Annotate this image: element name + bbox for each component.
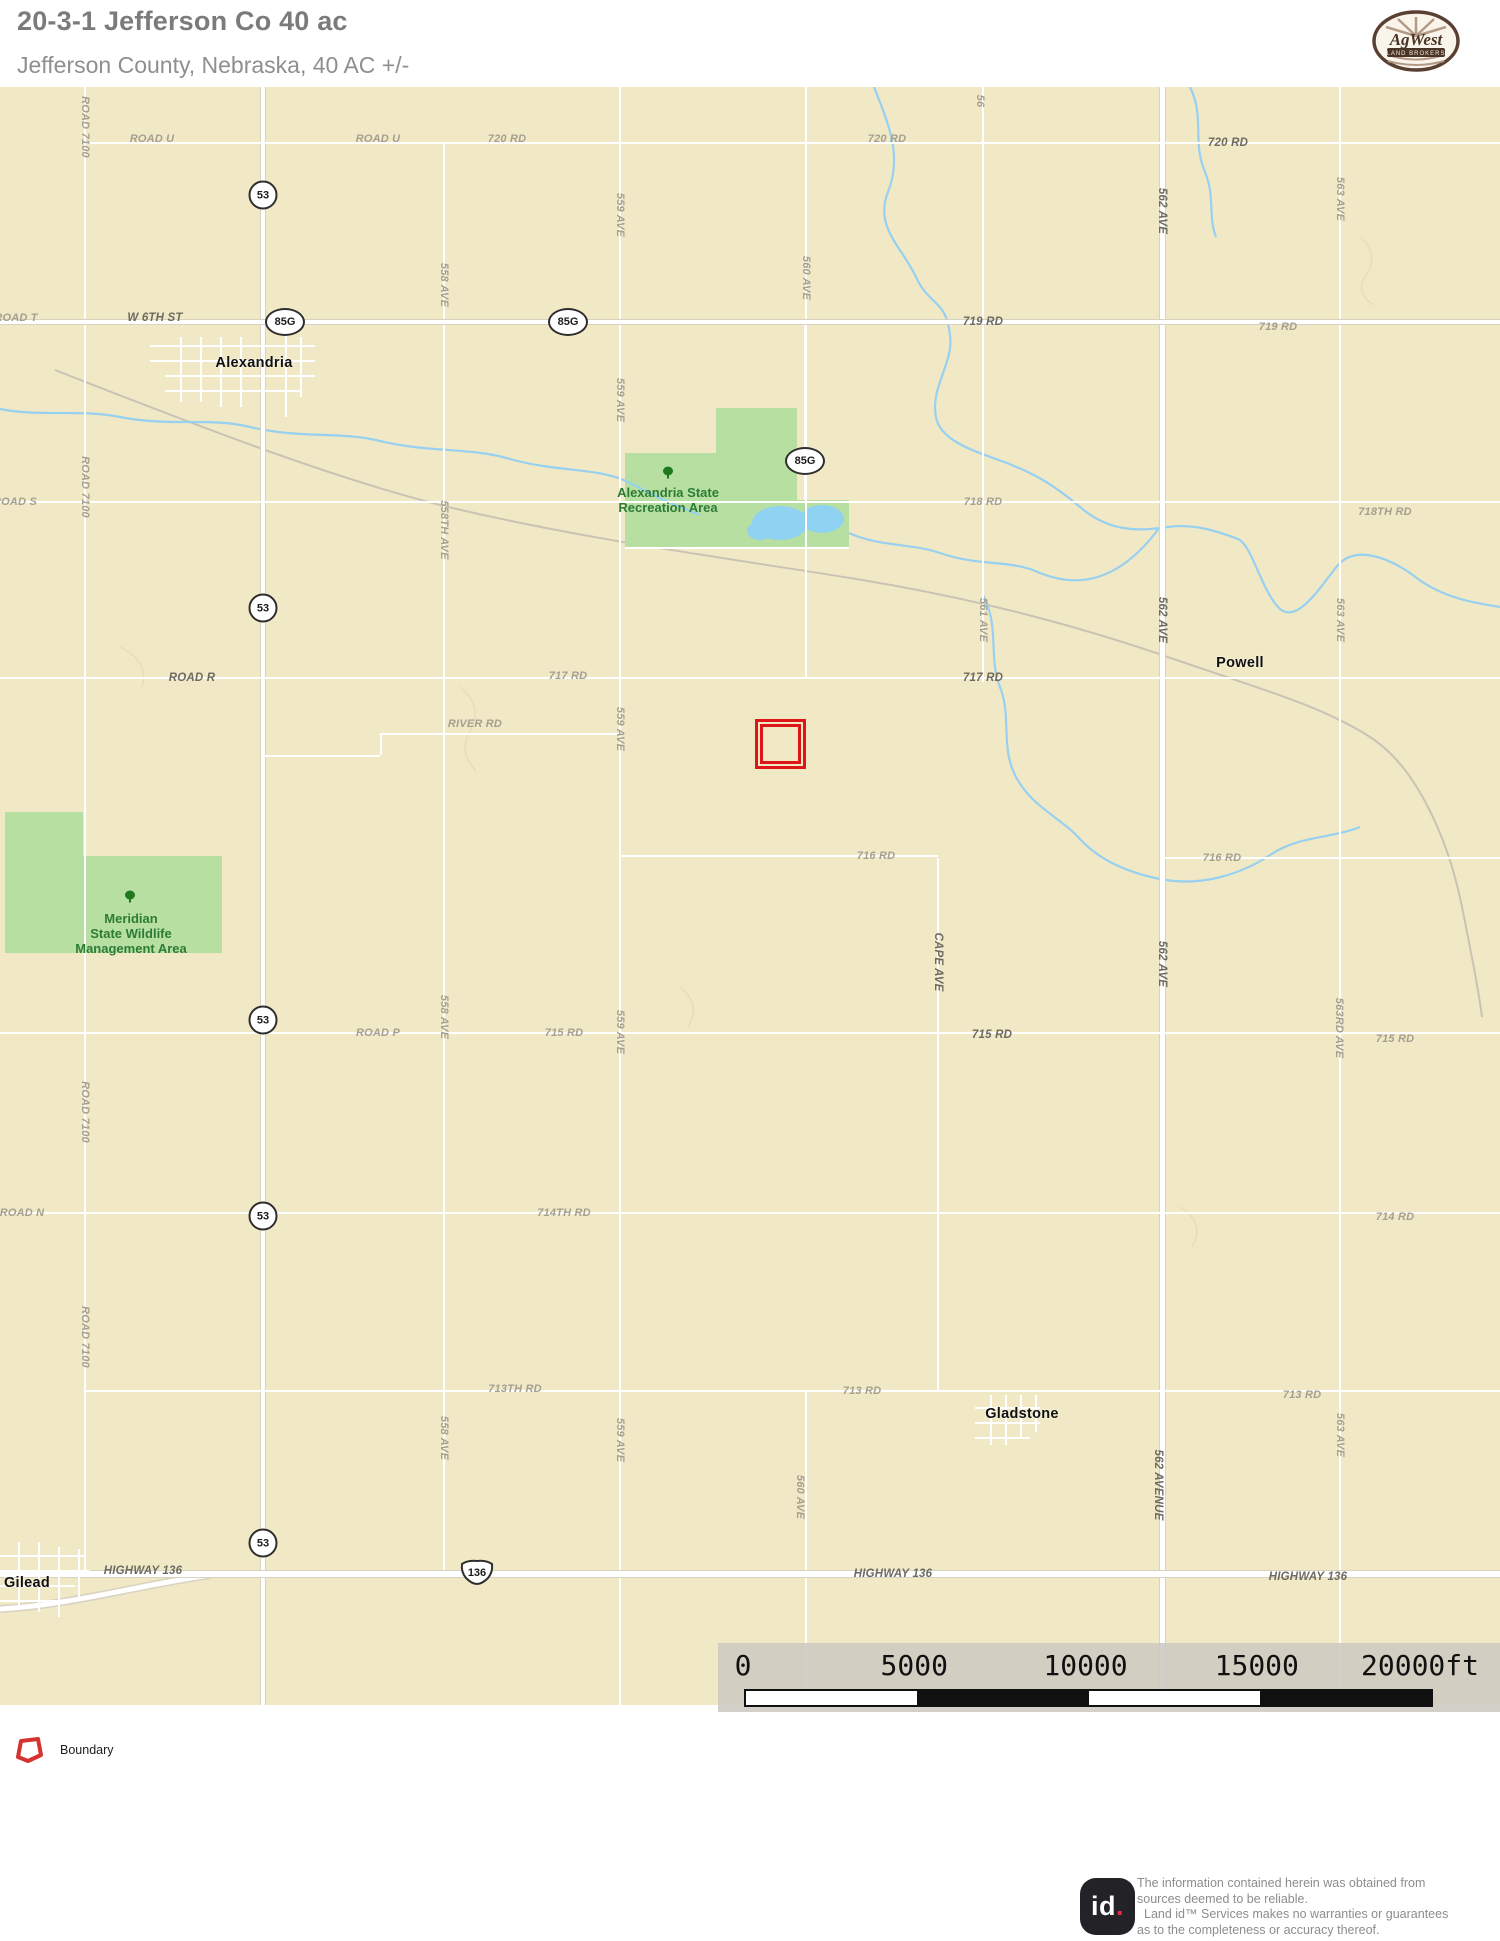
road-label-vertical: 559 AVE <box>614 1418 626 1462</box>
park-area-label: MeridianState WildlifeManagement Area <box>75 911 187 956</box>
road-label: 719 RD <box>1259 321 1298 333</box>
street-segment <box>285 330 287 417</box>
town-label: Gladstone <box>985 1406 1059 1422</box>
road-label: 718TH RD <box>1358 506 1412 518</box>
highway-shield: 53 <box>249 181 278 210</box>
road-label-vertical: ROAD 7100 <box>79 1081 91 1143</box>
scale-tick-label: 15000 <box>1215 1649 1299 1682</box>
road-label-vertical: 559 AVE <box>614 378 626 422</box>
highway-shield: 53 <box>249 594 278 623</box>
scale-tick-label: 0 <box>735 1649 752 1682</box>
svg-text:136: 136 <box>468 1567 486 1579</box>
street-segment <box>240 337 242 407</box>
scale-bar-segments <box>744 1689 1433 1707</box>
legend-item-label: Boundary <box>60 1743 114 1757</box>
street-segment <box>200 337 202 402</box>
road-label: RIVER RD <box>448 718 502 730</box>
road-segment <box>982 87 984 682</box>
road-label-vertical: 562 AVE <box>1156 188 1168 234</box>
road-label: 718 RD <box>964 496 1003 508</box>
road-label-vertical: 563RD AVE <box>1333 998 1345 1059</box>
street-segment <box>0 1600 60 1602</box>
highway-shield: 53 <box>249 1529 278 1558</box>
map-scale-bar: 05000100001500020000ft <box>718 1643 1500 1712</box>
road-label: ROAD R <box>169 672 216 684</box>
street-segment <box>380 733 625 735</box>
tree-icon <box>123 890 137 909</box>
road-label-vertical: 558 AVE <box>438 263 450 307</box>
road-label: 720 RD <box>488 133 527 145</box>
road-label: 717 RD <box>549 670 588 682</box>
street-segment <box>78 1549 80 1597</box>
page: 20-3-1 Jefferson Co 40 ac Jefferson Coun… <box>0 0 1500 1941</box>
street-segment <box>58 1547 60 1617</box>
road-label: HIGHWAY 136 <box>1269 1571 1347 1583</box>
road-segment <box>1339 87 1341 1705</box>
road-label-vertical: 563 AVE <box>1334 177 1346 221</box>
disclaimer-line: The information contained herein was obt… <box>1137 1876 1500 1892</box>
page-subtitle: Jefferson County, Nebraska, 40 AC +/- <box>17 52 409 79</box>
road-label: W 6TH ST <box>127 312 182 324</box>
road-label-vertical: 563 AVE <box>1334 598 1346 642</box>
road-label: ROAD T <box>0 312 38 324</box>
road-label-vertical: 561 AVE <box>977 598 989 642</box>
road-label-vertical: 559 AVE <box>614 1010 626 1054</box>
town-label: Gilead <box>4 1575 50 1591</box>
road-segment <box>261 87 265 1705</box>
road-label: HIGHWAY 136 <box>104 1565 182 1577</box>
park-area-label: Alexandria StateRecreation Area <box>617 485 719 515</box>
road-segment <box>0 1032 1500 1034</box>
street-segment <box>265 755 380 757</box>
terrain-texture <box>120 237 1374 1247</box>
highway-shield: 85G <box>785 447 825 475</box>
road-label: 714 RD <box>1376 1211 1415 1223</box>
land-id-logo-dot: . <box>1116 1891 1124 1922</box>
road-segment <box>619 87 621 1705</box>
boundary-legend-icon <box>14 1736 44 1764</box>
street-segment <box>180 337 182 402</box>
road-label: 719 RD <box>963 316 1003 328</box>
legend: Boundary <box>14 1736 114 1764</box>
road-label-vertical: 559 AVE <box>614 193 626 237</box>
street-segment <box>300 337 302 397</box>
road-label: 716 RD <box>1203 852 1242 864</box>
road-segment <box>0 1212 1500 1214</box>
road-segment <box>443 143 445 1577</box>
road-label: HIGHWAY 136 <box>854 1568 932 1580</box>
road-label: 715 RD <box>1376 1033 1415 1045</box>
highway-shield: 136 <box>459 1557 495 1587</box>
agwest-land-brokers-logo: AgWest LAND BROKERS <box>1372 9 1460 73</box>
road-label-vertical: 56 <box>974 95 986 108</box>
road-label: ROAD P <box>356 1027 400 1039</box>
agwest-logo-name: AgWest <box>1389 30 1444 49</box>
scale-tick-label: 5000 <box>881 1649 948 1682</box>
street-segment <box>975 1422 1040 1424</box>
street-segment <box>165 390 300 392</box>
property-boundary[interactable] <box>755 719 806 769</box>
road-label: 715 RD <box>545 1027 584 1039</box>
highway-shield: 85G <box>548 308 588 336</box>
street-segment <box>380 733 382 755</box>
road-label-vertical: 563 AVE <box>1334 1413 1346 1457</box>
street-segment <box>0 1555 85 1557</box>
street-segment <box>625 547 849 549</box>
road-label-vertical: 558 AVE <box>438 995 450 1039</box>
road-label-vertical: 562 AVE <box>1156 941 1168 987</box>
road-label: 716 RD <box>857 850 896 862</box>
road-label: ROAD U <box>356 133 401 145</box>
road-segment <box>0 677 1500 679</box>
road-label: 717 RD <box>963 672 1003 684</box>
road-label-vertical: 560 AVE <box>794 1475 806 1519</box>
road-label: 715 RD <box>972 1029 1012 1041</box>
town-label: Powell <box>1216 655 1264 671</box>
street-segment <box>150 345 315 347</box>
road-label: 720 RD <box>1208 137 1248 149</box>
land-id-logo-text: id <box>1091 1891 1116 1922</box>
disclaimer-line: as to the completeness or accuracy there… <box>1137 1923 1500 1939</box>
road-label-vertical: 560 AVE <box>800 256 812 300</box>
tree-icon <box>661 466 675 485</box>
street-segment <box>0 1570 90 1572</box>
road-segment <box>85 142 1500 144</box>
road-label: 713 RD <box>843 1385 882 1397</box>
land-id-logo: id. <box>1080 1878 1135 1935</box>
road-label-vertical: ROAD 7100 <box>79 456 91 518</box>
road-label-vertical: 562 AVENUE <box>1152 1449 1164 1520</box>
road-label: 713 RD <box>1283 1389 1322 1401</box>
page-title: 20-3-1 Jefferson Co 40 ac <box>17 6 348 37</box>
road-label-vertical: 558 AVE <box>438 1416 450 1460</box>
road-label-vertical: ROAD 7100 <box>79 1306 91 1368</box>
highway-shield: 53 <box>249 1006 278 1035</box>
road-label-vertical: 559 AVE <box>614 707 626 751</box>
highway-shield: 53 <box>249 1202 278 1231</box>
road-label: 720 RD <box>868 133 907 145</box>
road-label-vertical: 562 AVE <box>1156 597 1168 643</box>
agwest-logo-tagline: LAND BROKERS <box>1386 51 1445 57</box>
map-canvas[interactable]: ROAD UROAD U720 RD720 RD720 RDROAD TW 6T… <box>0 87 1500 1705</box>
park-areas <box>5 408 849 953</box>
highway-shield: 85G <box>265 308 305 336</box>
road-label: ROAD U <box>130 133 175 145</box>
road-label-vertical: ROAD 7100 <box>79 96 91 158</box>
scale-tick-label: 20000ft <box>1361 1649 1479 1682</box>
street-segment <box>975 1437 1030 1439</box>
town-label: Alexandria <box>215 355 292 371</box>
road-label: ROAD N <box>0 1207 44 1219</box>
road-label-vertical: CAPE AVE <box>932 932 944 991</box>
road-label-vertical: 558TH AVE <box>438 500 450 559</box>
street-segment <box>220 337 222 407</box>
road-label: 714TH RD <box>537 1207 591 1219</box>
road-segment <box>0 501 1500 503</box>
road-label: 713TH RD <box>488 1383 542 1395</box>
road-label: ROAD S <box>0 496 37 508</box>
disclaimer-text: The information contained herein was obt… <box>1137 1876 1500 1938</box>
disclaimer-line: sources deemed to be reliable. <box>1137 1892 1500 1908</box>
disclaimer-line: Land id™ Services makes no warranties or… <box>1137 1907 1500 1923</box>
scale-tick-label: 10000 <box>1043 1649 1127 1682</box>
